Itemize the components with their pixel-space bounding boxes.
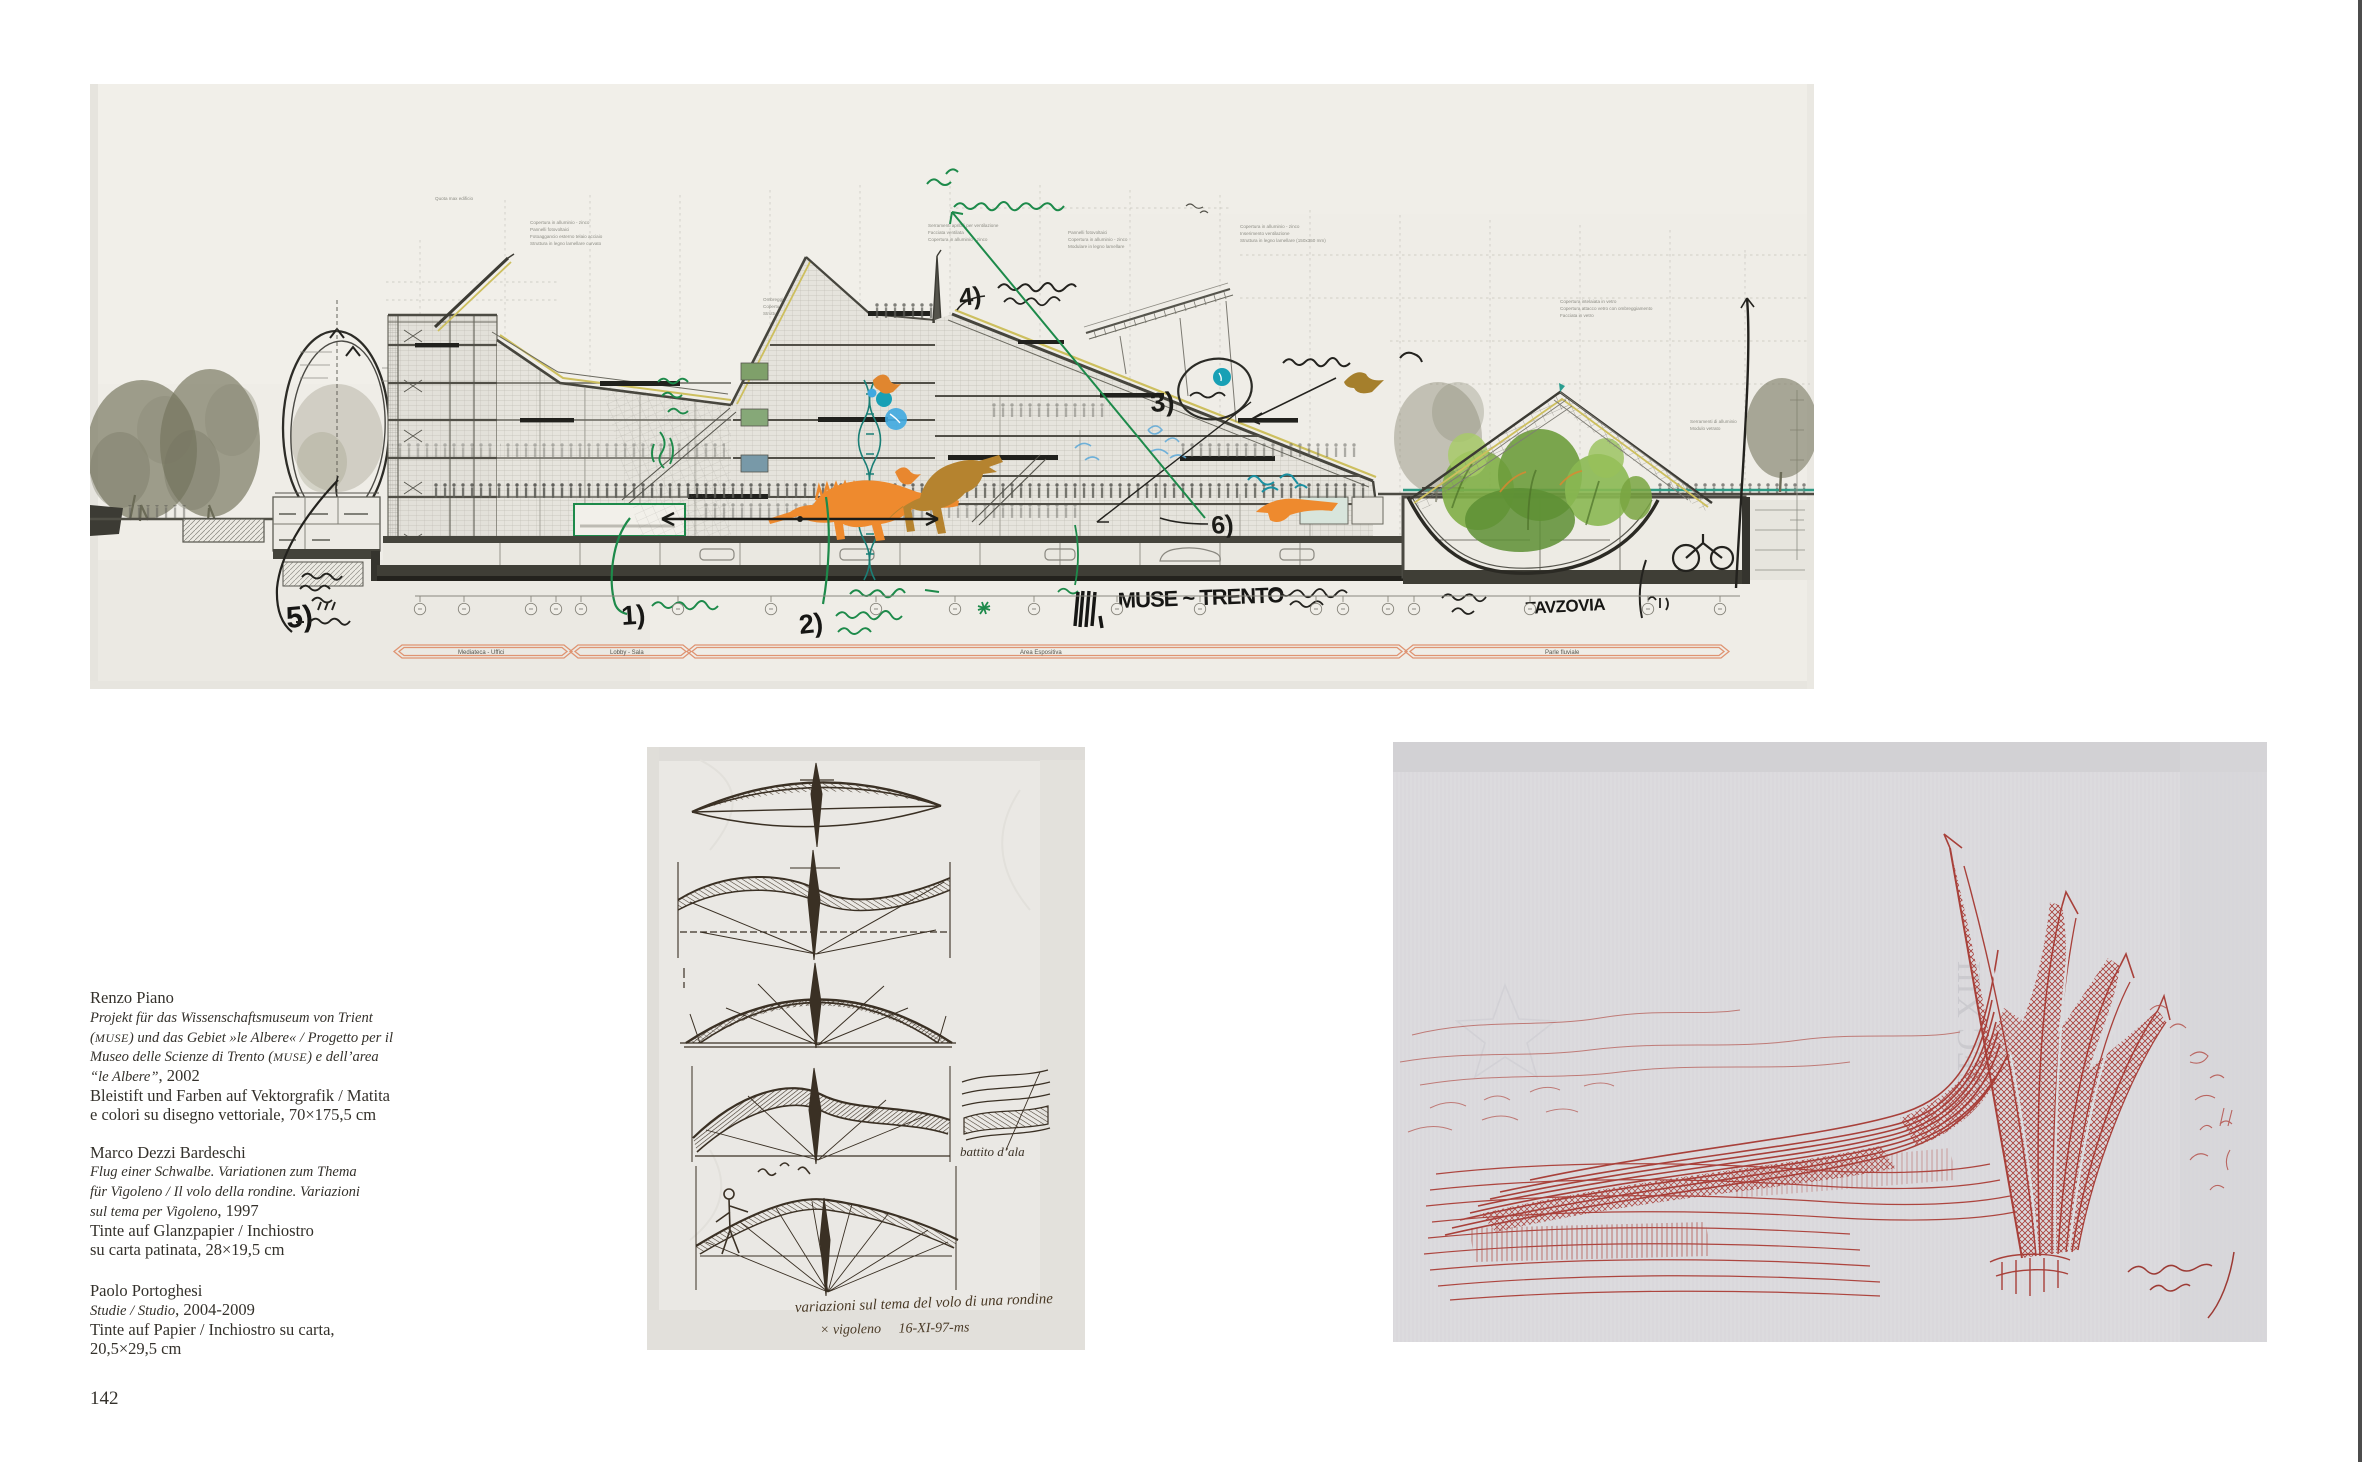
svg-text:Copertura in alluminio - zinco: Copertura in alluminio - zinco [1240,224,1300,229]
svg-text:3): 3) [1149,386,1175,418]
svg-text:Lobby - Sala: Lobby - Sala [610,650,644,656]
svg-text:× vigoleno 16-XI-97-ms: × vigoleno 16-XI-97-ms [820,1320,970,1338]
svg-text:Copertura in alluminio - zinco: Copertura in alluminio - zinco [1068,237,1128,242]
svg-text:Fotoaggancio esterno telaio ac: Fotoaggancio esterno telaio acciaio [530,234,603,239]
svg-text:Area Espositiva: Area Espositiva [1020,650,1062,656]
svg-text:Struttura in legno lamellare (: Struttura in legno lamellare (150x350 mm… [1240,238,1326,243]
svg-text:Mediateca - Uffici: Mediateca - Uffici [458,650,504,656]
svg-text:Copertura attacco vetro con om: Copertura attacco vetro con ombreggiamen… [1560,306,1653,311]
svg-text:Parle fluviale: Parle fluviale [1545,650,1580,656]
svg-text:battito d’ala: battito d’ala [960,1144,1025,1159]
svg-text:1): 1) [620,599,646,631]
svg-text:Struttura in legno lamellare c: Struttura in legno lamellare curvato [530,241,602,246]
svg-text:Inserimento ventilazione: Inserimento ventilazione [1240,231,1290,236]
svg-text:Pannelli fotovoltaici: Pannelli fotovoltaici [530,227,569,232]
svg-text:Copertura intelaiata in vetro: Copertura intelaiata in vetro [1560,299,1617,304]
svg-text:Modulare in legno lamellare: Modulare in legno lamellare [1068,244,1125,249]
svg-text:Modulo vetrato: Modulo vetrato [1690,426,1721,431]
svg-text:Serramenti di alluminio: Serramenti di alluminio [1690,419,1737,424]
svg-text:Copertura in alluminio - zinco: Copertura in alluminio - zinco [530,220,590,225]
svg-text:2): 2) [797,608,824,640]
svg-text:Facciata in vetro: Facciata in vetro [1560,313,1594,318]
svg-text:Quota max edificio: Quota max edificio [435,196,473,201]
svg-text:6): 6) [1210,510,1235,540]
svg-text:Pannelli fotovoltaici: Pannelli fotovoltaici [1068,230,1107,235]
svg-text:Copertura in alluminio - zinco: Copertura in alluminio - zinco [928,237,988,242]
svg-text:Facciata ventilata: Facciata ventilata [928,230,964,235]
